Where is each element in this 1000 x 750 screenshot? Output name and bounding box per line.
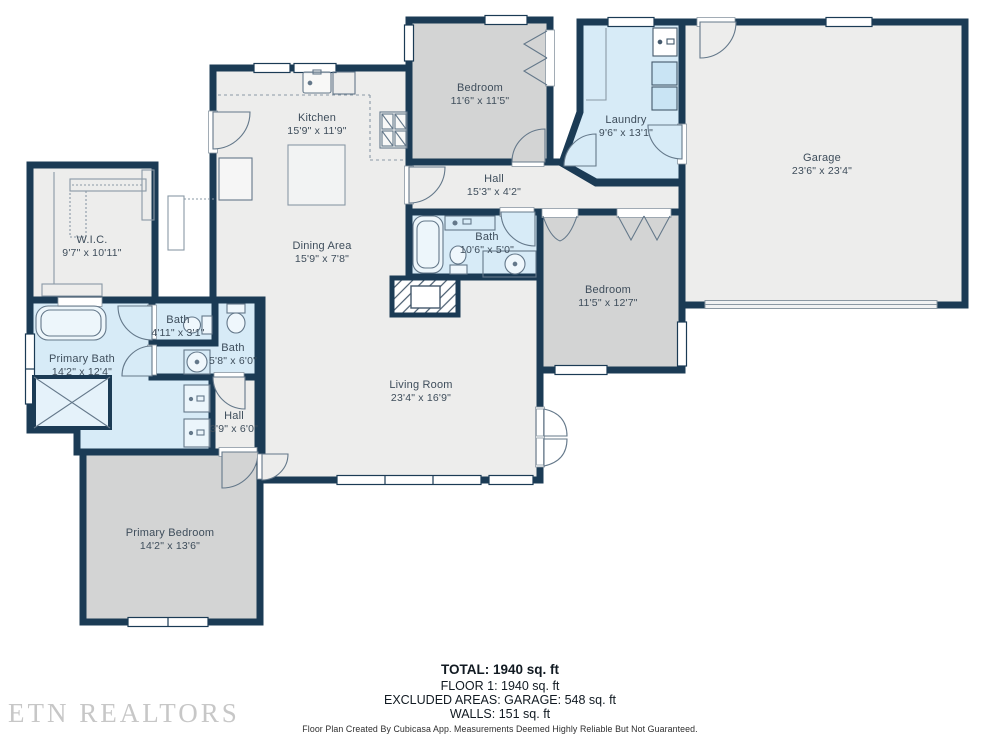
garage-door-icon [705, 301, 937, 309]
room-bedroom-right [540, 212, 682, 370]
utility-sink-icon [653, 28, 677, 56]
window-icon [678, 322, 687, 366]
utility-closet [168, 196, 214, 250]
hatched-nook [392, 278, 458, 315]
kitchen-island [288, 145, 345, 205]
toilet-icon [184, 316, 213, 334]
opening [58, 298, 102, 307]
summary-floor1: FLOOR 1: 1940 sq. ft [0, 680, 1000, 693]
dryer-icon [652, 87, 677, 110]
toilet-icon [227, 304, 245, 333]
window-icon [608, 18, 654, 27]
floor-plan-drawing [0, 0, 1000, 750]
window-icon [555, 366, 607, 375]
room-garage [682, 22, 965, 305]
brand-watermark: ETN REALTORS [8, 698, 240, 729]
kitchen-sink-icon [303, 70, 331, 93]
window-icon [485, 16, 527, 25]
window-icon [826, 18, 872, 27]
window-icon [405, 25, 414, 61]
bathtub-icon [36, 306, 106, 340]
stove-icon [380, 112, 407, 148]
summary-total: TOTAL: 1940 sq. ft [0, 662, 1000, 679]
window-icon [294, 64, 336, 73]
window-icon [337, 476, 481, 485]
shower-icon [34, 377, 110, 428]
window-icon [489, 476, 533, 485]
fridge-icon [219, 158, 252, 200]
patio-door-icon [536, 407, 568, 467]
bathtub-icon [413, 216, 443, 273]
rooms [30, 20, 965, 622]
washer-icon [652, 62, 677, 85]
window-icon [254, 64, 290, 73]
floor-plan: W.I.C.9'7" x 10'11" Kitchen15'9" x 11'9"… [0, 0, 1000, 750]
window-icon [128, 618, 208, 627]
toilet-icon [450, 246, 467, 274]
